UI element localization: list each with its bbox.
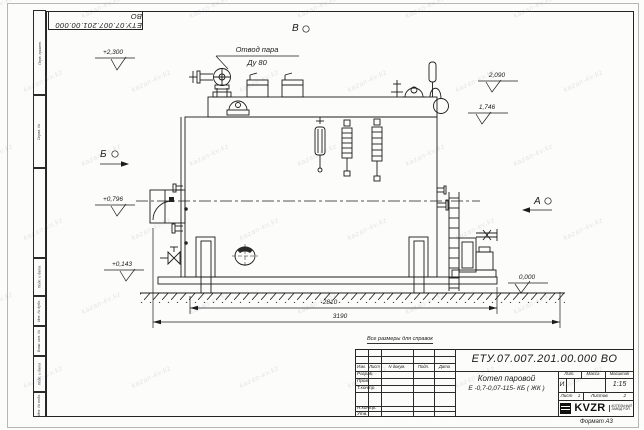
ground-line — [140, 293, 565, 303]
elevation-2300: +2,300 — [95, 49, 135, 70]
level-gauge-1 — [342, 120, 352, 176]
svg-text:0,000: 0,000 — [519, 274, 536, 281]
col-data: Дата — [434, 363, 455, 371]
col-podp: Подп. — [413, 363, 434, 371]
steam-outlet-callout: Отвод пара Ду 80 — [216, 45, 299, 69]
row-prov: Пров. — [355, 378, 381, 385]
view-label-b: Б — [100, 149, 129, 167]
svg-text:Отвод пара: Отвод пара — [236, 45, 279, 54]
dimension-2810-value: 2810 — [322, 299, 338, 306]
elevation-1746: 1,746 — [468, 104, 508, 124]
drum-bracket — [227, 101, 249, 115]
sheets-cell: Листов 2 — [583, 392, 634, 400]
view-labels: В Б А — [100, 23, 552, 213]
doc-number: ЕТУ.07.007.201.00.000 ВО — [456, 350, 633, 370]
svg-text:А: А — [533, 196, 541, 207]
mass-header: Масса — [581, 371, 605, 378]
elevation-0143: +0,143 — [104, 261, 144, 281]
col-list: Лист — [368, 363, 381, 371]
scale-header: Масштаб — [605, 371, 634, 378]
kvzr-logo-subtitle: КОТЕЛЬНЫЙ ЗАВОД РЭП — [609, 405, 632, 412]
col-ndokum: N докум. — [381, 363, 413, 371]
manhole — [232, 244, 258, 268]
svg-text:В: В — [292, 23, 299, 34]
view-label-a: А — [522, 196, 552, 213]
dimension-3190: 3190 — [153, 228, 560, 328]
svg-text:2,090: 2,090 — [488, 72, 506, 79]
format-note: Формат А3 — [580, 419, 613, 425]
svg-text:+0,143: +0,143 — [112, 261, 132, 268]
lit-value: И — [558, 378, 566, 392]
product-name-line2: Е -0,7-0,07-115- КБ ( ЖК ) — [456, 384, 557, 394]
elevation-0000: 0,000 — [508, 274, 548, 293]
row-razrab: Разраб. — [355, 371, 381, 378]
kvzr-logo-icon — [560, 403, 571, 414]
water-column — [315, 117, 325, 172]
support-skid-rear — [409, 237, 428, 293]
svg-text:Ду 80: Ду 80 — [246, 58, 267, 67]
burner-front — [150, 190, 185, 223]
support-skid-front — [196, 237, 215, 293]
steam-outlet-valve — [189, 69, 231, 98]
svg-text:Б: Б — [100, 149, 107, 160]
row-utv: Утв. — [355, 411, 381, 417]
kvzr-logo-text: KVZR — [574, 403, 605, 415]
lit-header: Лит. — [558, 371, 581, 378]
rear-nozzles — [437, 186, 448, 210]
elevation-2090: 2,090 — [478, 72, 518, 92]
right-top-valve — [391, 80, 403, 97]
logo-cell: KVZR КОТЕЛЬНЫЙ ЗАВОД РЭП — [558, 400, 634, 417]
col-izm: Изм. — [355, 363, 368, 371]
view-label-v: В — [292, 23, 309, 34]
level-gauge-2 — [372, 119, 382, 181]
svg-text:+2,300: +2,300 — [103, 49, 123, 56]
thermometer-pocket — [429, 62, 436, 97]
svg-text:+0,796: +0,796 — [103, 196, 123, 203]
safety-valve-1 — [247, 73, 268, 97]
lifting-eye — [402, 87, 426, 97]
drawing-sheet: kazan-kv.kzkazan-kv.kzkazan-kv.kzkazan-k… — [0, 0, 644, 430]
scale-value: 1:15 — [605, 378, 634, 392]
reference-note: Все размеры для справок — [367, 336, 433, 344]
sheet-cell: Лист 1 — [558, 392, 583, 400]
safety-valve-2 — [282, 73, 303, 97]
ladder — [449, 192, 459, 291]
blowdown-valve — [160, 247, 180, 264]
dimension-3190-value: 3190 — [333, 313, 348, 320]
svg-text:1,746: 1,746 — [479, 104, 496, 111]
elevation-0796: +0,796 — [95, 196, 135, 216]
row-tkontr: Т.контр. — [355, 385, 381, 392]
